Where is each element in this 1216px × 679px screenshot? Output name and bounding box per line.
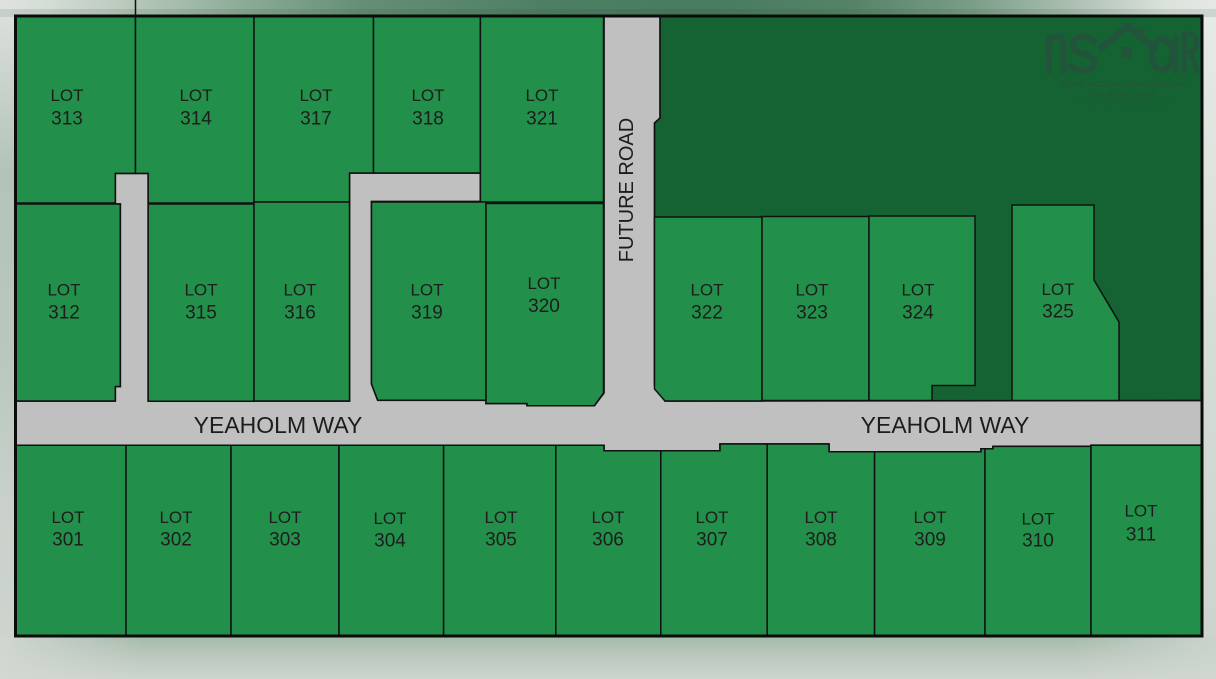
svg-text:IT PAYS TO USE A REALTOR: IT PAYS TO USE A REALTOR <box>1076 100 1170 107</box>
svg-text:LOT: LOT <box>695 508 728 527</box>
svg-text:LOT: LOT <box>901 281 934 300</box>
svg-text:312: 312 <box>48 303 80 324</box>
svg-text:317: 317 <box>300 109 332 130</box>
svg-text:320: 320 <box>528 296 560 317</box>
svg-text:305: 305 <box>485 530 517 551</box>
svg-text:313: 313 <box>51 109 83 130</box>
svg-text:LOT: LOT <box>1124 502 1157 521</box>
svg-text:325: 325 <box>1042 302 1074 323</box>
svg-text:LOT: LOT <box>268 508 301 527</box>
svg-text:318: 318 <box>412 109 444 130</box>
svg-text:319: 319 <box>411 303 443 324</box>
svg-text:LOT: LOT <box>1021 510 1054 529</box>
svg-text:OF REALTORS: OF REALTORS <box>1091 89 1154 99</box>
svg-text:315: 315 <box>185 303 217 324</box>
svg-text:LOT: LOT <box>411 86 444 105</box>
svg-text:314: 314 <box>180 109 212 130</box>
svg-text:310: 310 <box>1022 531 1054 552</box>
svg-text:308: 308 <box>805 530 837 551</box>
svg-text:323: 323 <box>796 303 828 324</box>
svg-text:YEAHOLM WAY: YEAHOLM WAY <box>194 412 363 438</box>
svg-text:322: 322 <box>691 303 723 324</box>
svg-text:316: 316 <box>284 303 316 324</box>
svg-text:LOT: LOT <box>373 509 406 528</box>
svg-text:LOT: LOT <box>913 508 946 527</box>
svg-text:321: 321 <box>526 109 558 130</box>
svg-text:LOT: LOT <box>527 274 560 293</box>
svg-text:FUTURE ROAD: FUTURE ROAD <box>616 118 638 262</box>
svg-text:302: 302 <box>160 530 192 551</box>
svg-text:LOT: LOT <box>484 508 517 527</box>
svg-text:303: 303 <box>269 530 301 551</box>
svg-text:LOT: LOT <box>804 508 837 527</box>
svg-text:324: 324 <box>902 303 934 324</box>
svg-text:301: 301 <box>52 530 84 551</box>
svg-text:LOT: LOT <box>179 86 212 105</box>
svg-text:LOT: LOT <box>795 281 828 300</box>
svg-text:LOT: LOT <box>525 86 558 105</box>
svg-text:311: 311 <box>1126 525 1156 546</box>
svg-text:YEAHOLM WAY: YEAHOLM WAY <box>861 412 1030 438</box>
svg-text:LOT: LOT <box>47 281 80 300</box>
svg-text:307: 307 <box>696 530 728 551</box>
svg-text:LOT: LOT <box>1041 280 1074 299</box>
svg-text:306: 306 <box>592 530 624 551</box>
svg-text:LOT: LOT <box>159 508 192 527</box>
svg-text:LOT: LOT <box>184 281 217 300</box>
svg-text:LOT: LOT <box>690 281 723 300</box>
svg-text:NOVA SCOTIA ASSOCIATION: NOVA SCOTIA ASSOCIATION <box>1060 79 1185 89</box>
svg-text:309: 309 <box>914 530 946 551</box>
svg-text:304: 304 <box>374 531 406 552</box>
svg-text:LOT: LOT <box>50 86 83 105</box>
svg-text:LOT: LOT <box>299 86 332 105</box>
svg-text:LOT: LOT <box>591 508 624 527</box>
svg-text:LOT: LOT <box>283 281 316 300</box>
svg-text:LOT: LOT <box>410 281 443 300</box>
svg-text:LOT: LOT <box>51 508 84 527</box>
